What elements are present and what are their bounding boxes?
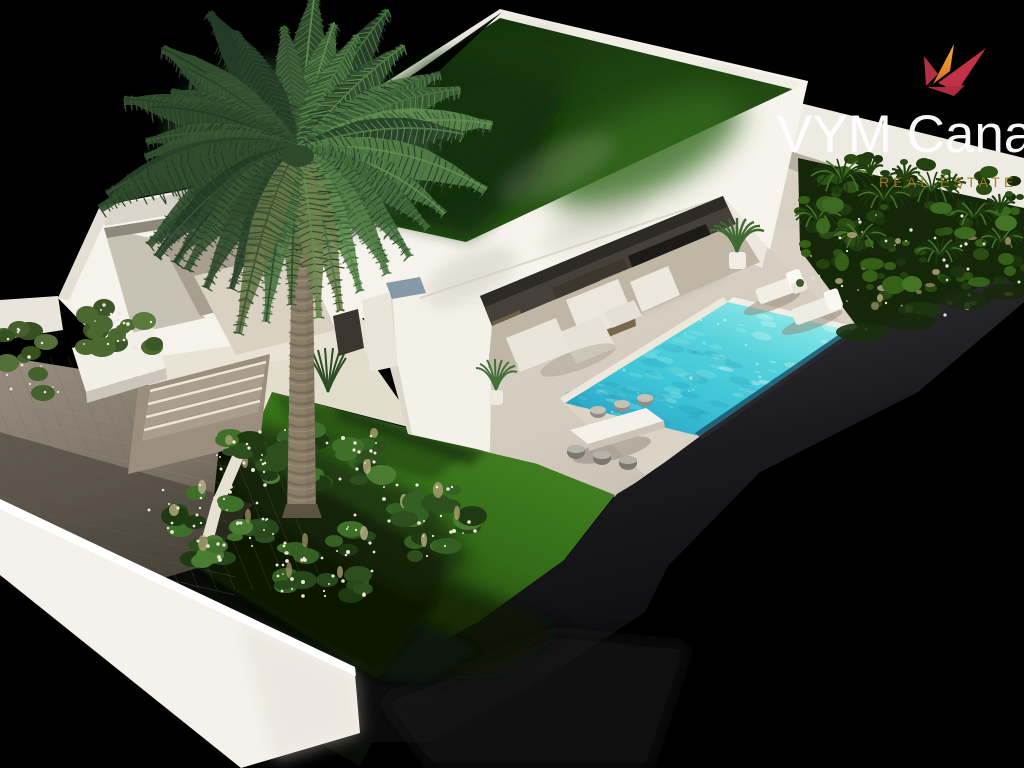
svg-text:REAL ESTATE: REAL ESTATE — [879, 174, 1018, 190]
svg-text:VYM Canarias: VYM Canarias — [777, 105, 1024, 164]
